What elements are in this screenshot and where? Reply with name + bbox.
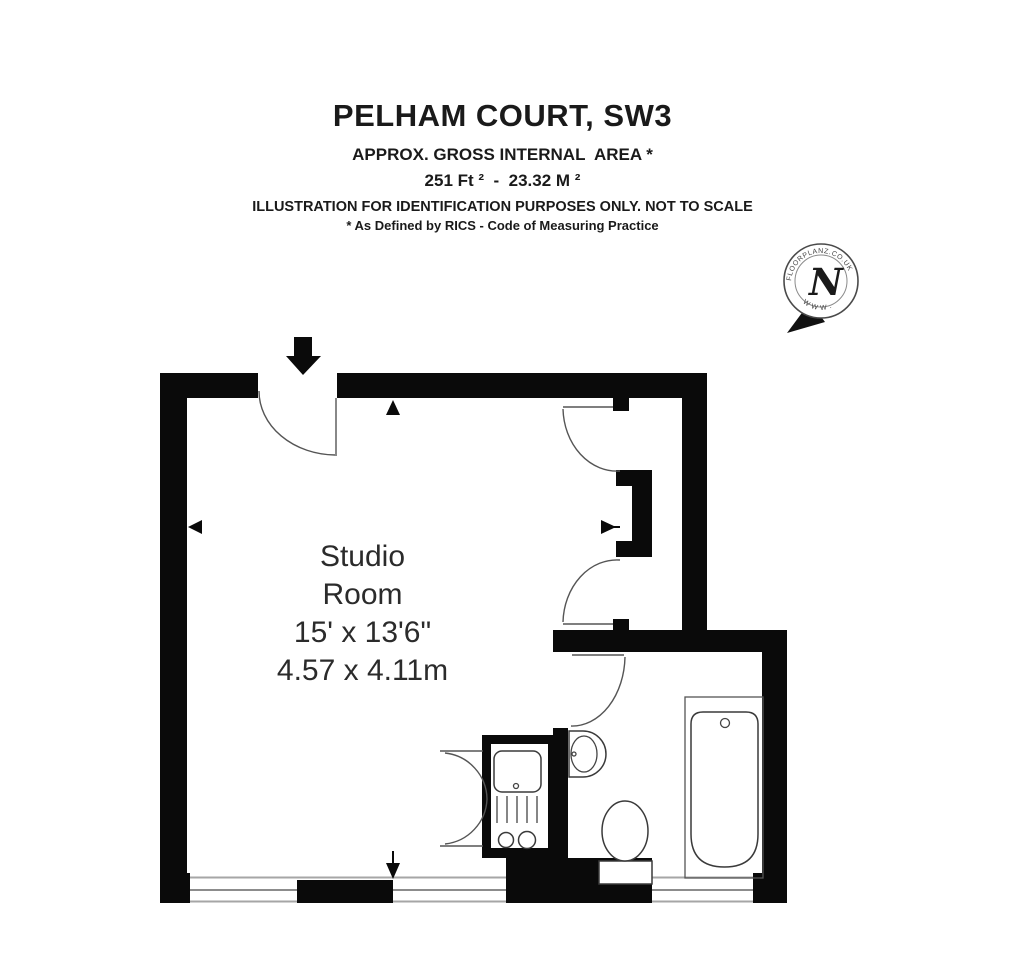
wardrobe-jamb-bottom bbox=[613, 619, 629, 632]
wall-top-left bbox=[160, 373, 258, 398]
hob-burner-right bbox=[519, 832, 536, 849]
wardrobe-door-bottom-swing bbox=[563, 560, 620, 622]
wall-bottom-pier bbox=[297, 880, 393, 903]
toilet-cistern bbox=[599, 861, 652, 884]
entry-arrow-icon bbox=[286, 337, 321, 375]
wall-left bbox=[160, 373, 187, 903]
kitchen-sink bbox=[494, 751, 541, 792]
dimension-arrow-down-icon bbox=[386, 851, 400, 879]
niche-stub-bottom bbox=[616, 541, 633, 557]
niche-stub-top bbox=[616, 470, 633, 486]
wall-bathroom-top bbox=[553, 630, 787, 652]
floorplan-drawing: FLOORPLANZ.CO.UK W W W . N bbox=[0, 0, 1020, 976]
wardrobe-jamb-top bbox=[613, 398, 629, 411]
wall-top-right bbox=[337, 373, 705, 398]
hob-burner-left bbox=[499, 833, 514, 848]
kitchenette-unit bbox=[482, 735, 553, 858]
wash-basin bbox=[569, 731, 606, 777]
bathroom-fixtures bbox=[569, 697, 763, 884]
compass: FLOORPLANZ.CO.UK W W W . N bbox=[784, 244, 858, 333]
compass-north-letter: N bbox=[808, 260, 844, 304]
wall-corner-bottom-left bbox=[160, 873, 190, 903]
kitchen-door-top-swing bbox=[445, 753, 487, 799]
dimension-arrow-left-icon bbox=[188, 520, 202, 534]
toilet-bowl bbox=[602, 801, 648, 861]
wall-kitchen-bathroom bbox=[553, 728, 568, 878]
bathtub bbox=[691, 712, 758, 867]
wall-studio-right bbox=[682, 373, 707, 652]
kitchen-door-bottom-swing bbox=[445, 799, 487, 844]
wall-right bbox=[762, 630, 787, 903]
dimension-arrow-up-icon bbox=[386, 400, 400, 415]
dimension-arrow-right-icon bbox=[601, 520, 620, 534]
bathroom-door-swing bbox=[571, 657, 625, 726]
window-bottom bbox=[190, 878, 753, 902]
niche-back bbox=[632, 470, 652, 557]
wardrobe-door-top-swing bbox=[563, 409, 620, 471]
entry-door-swing bbox=[259, 391, 335, 455]
floorplan-page: PELHAM COURT, SW3 APPROX. GROSS INTERNAL… bbox=[0, 0, 1020, 976]
